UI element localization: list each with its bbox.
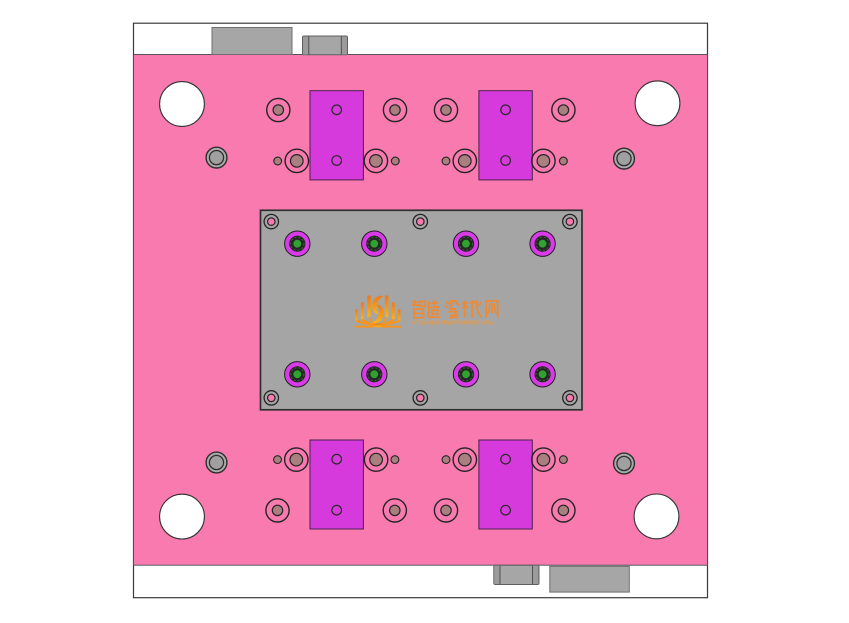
svg-text:INTELLIGENT MANUFACTURING DATA: INTELLIGENT MANUFACTURING DATA [412, 321, 494, 327]
